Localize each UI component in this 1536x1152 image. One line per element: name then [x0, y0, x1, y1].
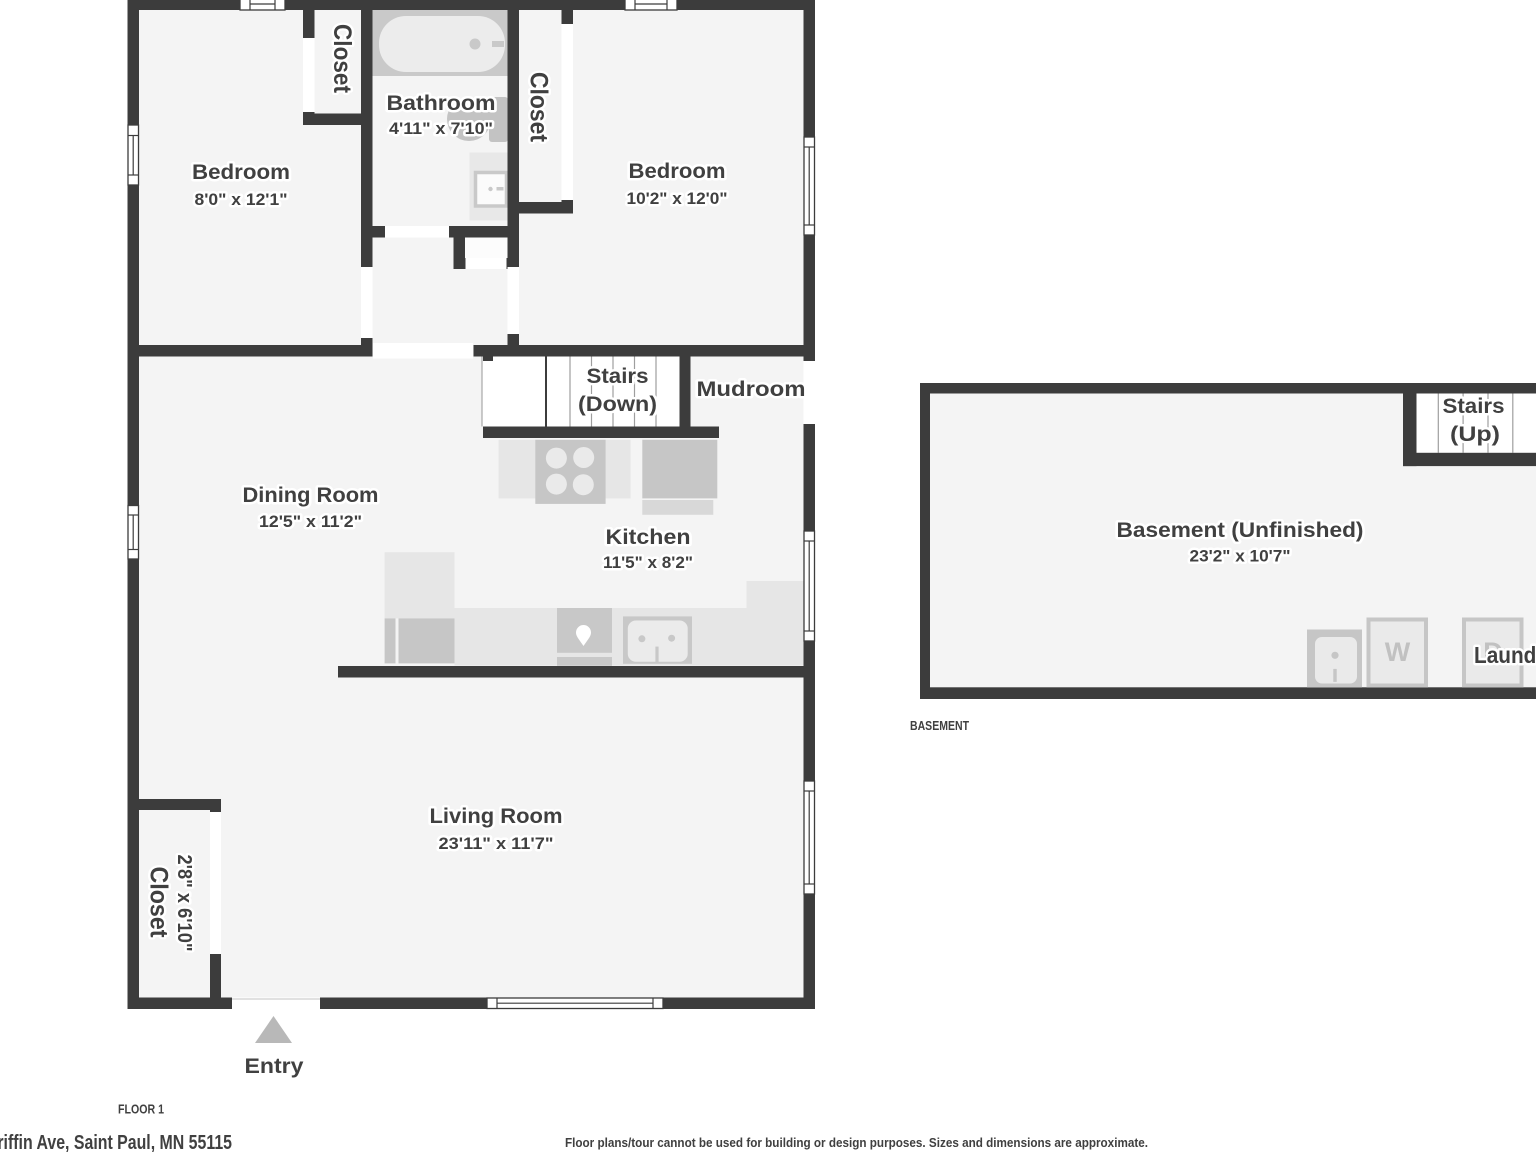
svg-text:Basement (Unfinished): Basement (Unfinished): [1117, 519, 1364, 542]
svg-text:10'2" x 12'0": 10'2" x 12'0": [627, 189, 728, 208]
svg-text:Closet: Closet: [525, 72, 553, 143]
svg-text:23'11" x 11'7": 23'11" x 11'7": [439, 834, 554, 853]
svg-text:Floor plans/tour cannot be use: Floor plans/tour cannot be used for buil…: [565, 1135, 1148, 1150]
svg-text:W: W: [1385, 637, 1411, 667]
svg-text:Living Room: Living Room: [430, 805, 563, 828]
svg-text:Closet: Closet: [328, 24, 356, 94]
svg-text:Bedroom: Bedroom: [192, 161, 290, 184]
svg-text:Bathroom: Bathroom: [387, 92, 496, 115]
svg-text:BASEMENT: BASEMENT: [910, 719, 969, 733]
svg-text:2'8" x 6'10": 2'8" x 6'10": [173, 855, 195, 952]
svg-text:12'5" x 11'2": 12'5" x 11'2": [259, 512, 362, 531]
svg-text:23'2" x 10'7": 23'2" x 10'7": [1190, 547, 1291, 566]
svg-text:Bedroom: Bedroom: [629, 160, 726, 183]
svg-text:8'0" x 12'1": 8'0" x 12'1": [195, 190, 288, 209]
svg-text:Griffin Ave, Saint Paul, MN 55: Griffin Ave, Saint Paul, MN 55115: [0, 1132, 232, 1152]
svg-text:Dining Room: Dining Room: [243, 484, 379, 507]
svg-text:FLOOR 1: FLOOR 1: [118, 1103, 164, 1117]
svg-text:Kitchen: Kitchen: [606, 526, 691, 549]
svg-text:Laundry: Laundry: [1474, 642, 1536, 668]
svg-text:(Up): (Up): [1450, 423, 1500, 446]
svg-text:Stairs: Stairs: [1443, 395, 1505, 418]
svg-text:11'5" x 8'2": 11'5" x 8'2": [603, 553, 693, 572]
svg-text:4'11" x 7'10": 4'11" x 7'10": [389, 119, 493, 138]
svg-text:Stairs: Stairs: [587, 365, 649, 388]
svg-text:(Down): (Down): [578, 393, 657, 416]
svg-text:Closet: Closet: [145, 867, 173, 939]
svg-text:Entry: Entry: [245, 1055, 304, 1078]
svg-text:Mudroom: Mudroom: [697, 378, 806, 401]
